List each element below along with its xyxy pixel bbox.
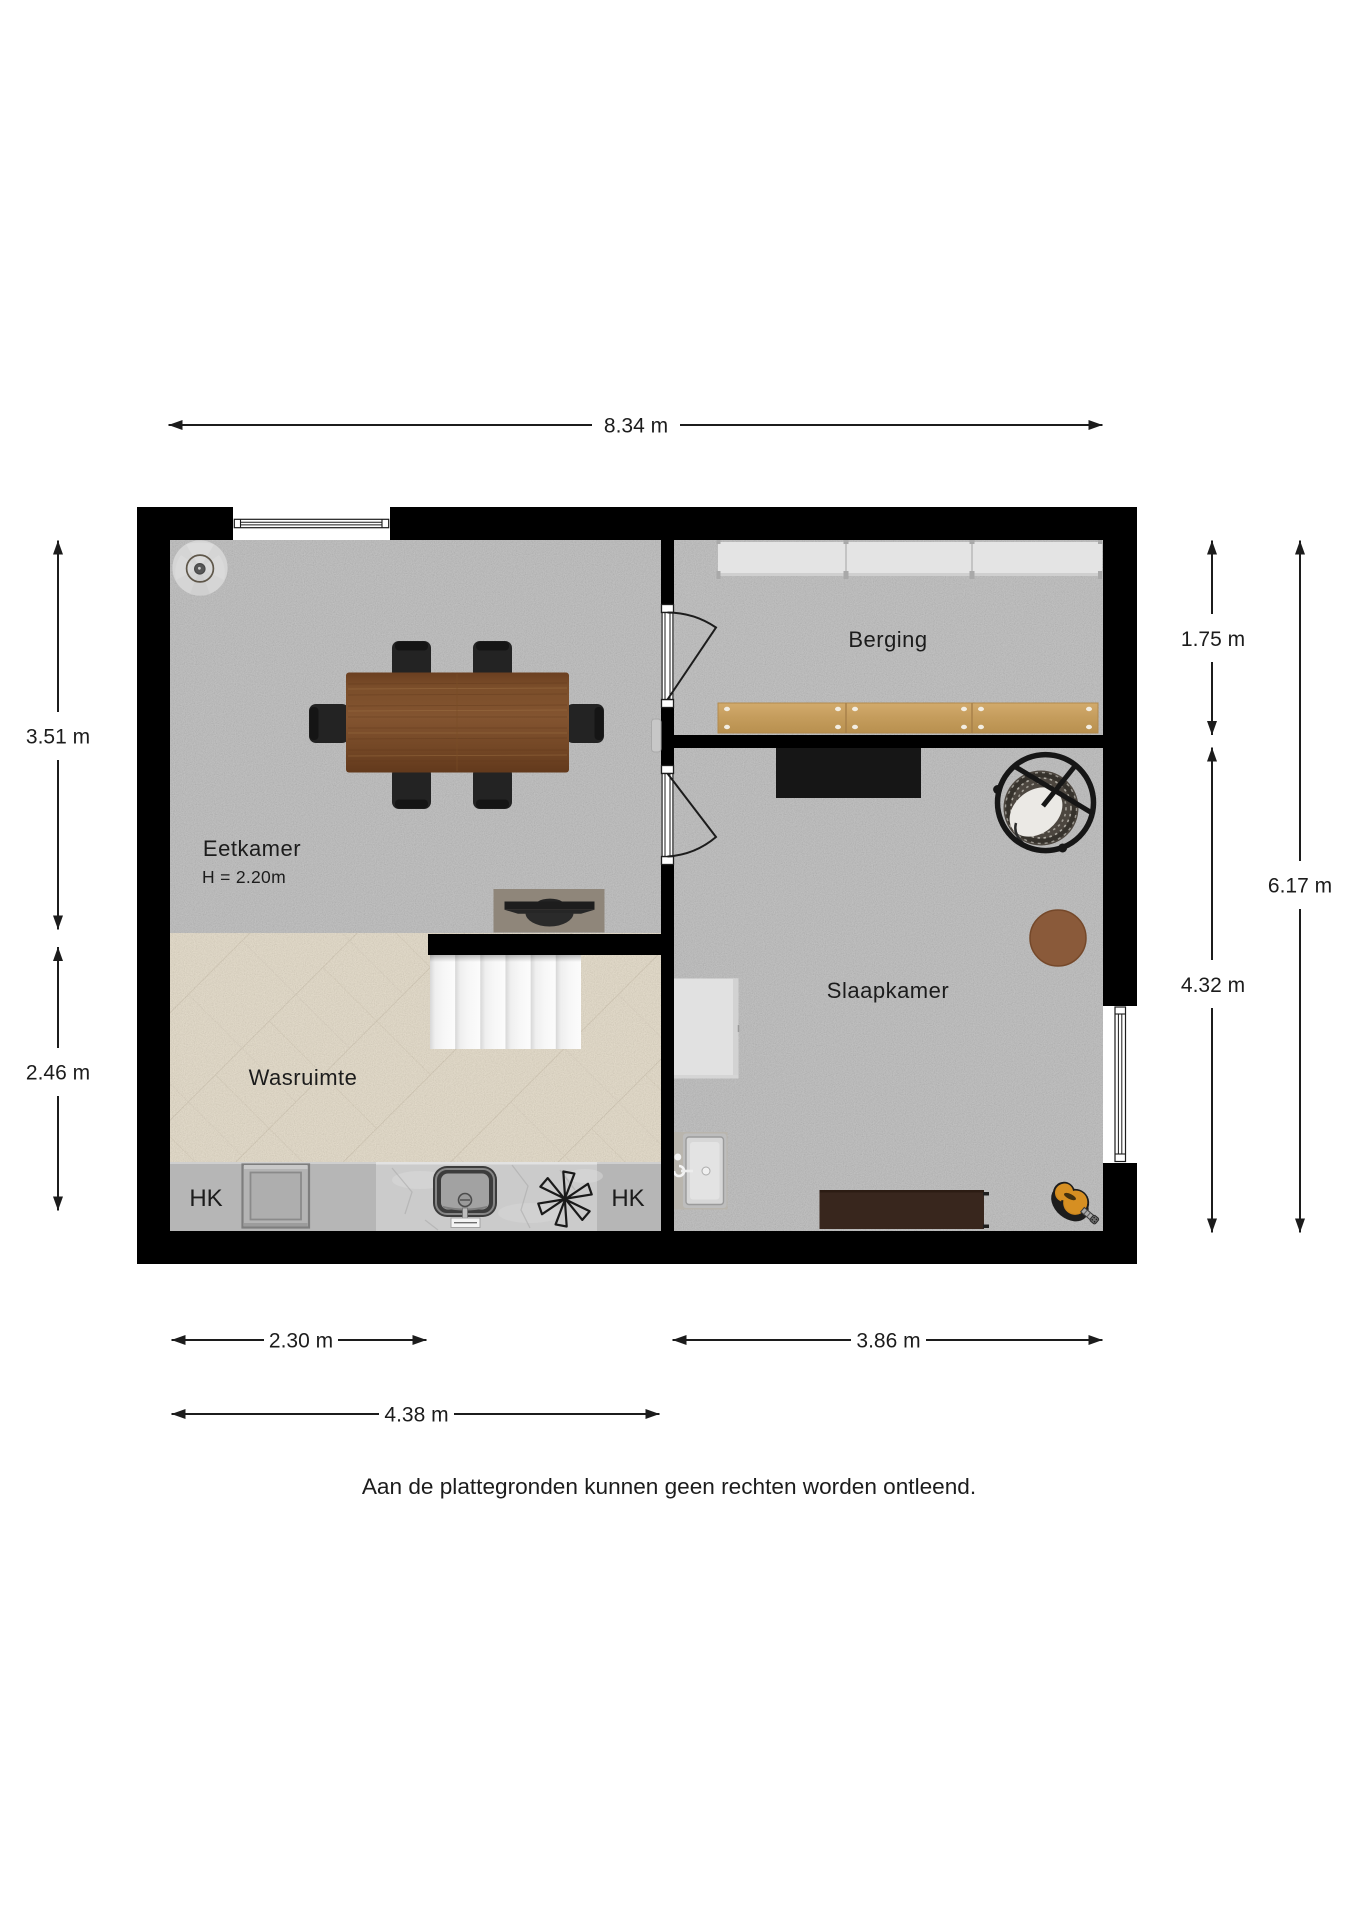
svg-text:Aan de plattegronden kunnen ge: Aan de plattegronden kunnen geen rechten…	[362, 1474, 976, 1499]
svg-text:4.32 m: 4.32 m	[1181, 974, 1245, 997]
svg-text:8.34 m: 8.34 m	[604, 415, 668, 438]
svg-text:Eetkamer: Eetkamer	[203, 836, 301, 861]
svg-text:6.17 m: 6.17 m	[1268, 875, 1332, 898]
svg-text:Wasruimte: Wasruimte	[249, 1065, 358, 1090]
svg-text:1.75 m: 1.75 m	[1181, 628, 1245, 651]
svg-text:2.30 m: 2.30 m	[269, 1330, 333, 1353]
svg-text:HK: HK	[189, 1185, 222, 1212]
svg-text:Slaapkamer: Slaapkamer	[827, 978, 949, 1003]
svg-text:Berging: Berging	[848, 627, 927, 652]
svg-text:3.86 m: 3.86 m	[856, 1330, 920, 1353]
svg-text:2.46 m: 2.46 m	[26, 1062, 90, 1085]
svg-text:H = 2.20m: H = 2.20m	[202, 867, 286, 887]
svg-text:4.38 m: 4.38 m	[384, 1404, 448, 1427]
svg-text:HK: HK	[611, 1185, 644, 1212]
svg-text:3.51 m: 3.51 m	[26, 726, 90, 749]
